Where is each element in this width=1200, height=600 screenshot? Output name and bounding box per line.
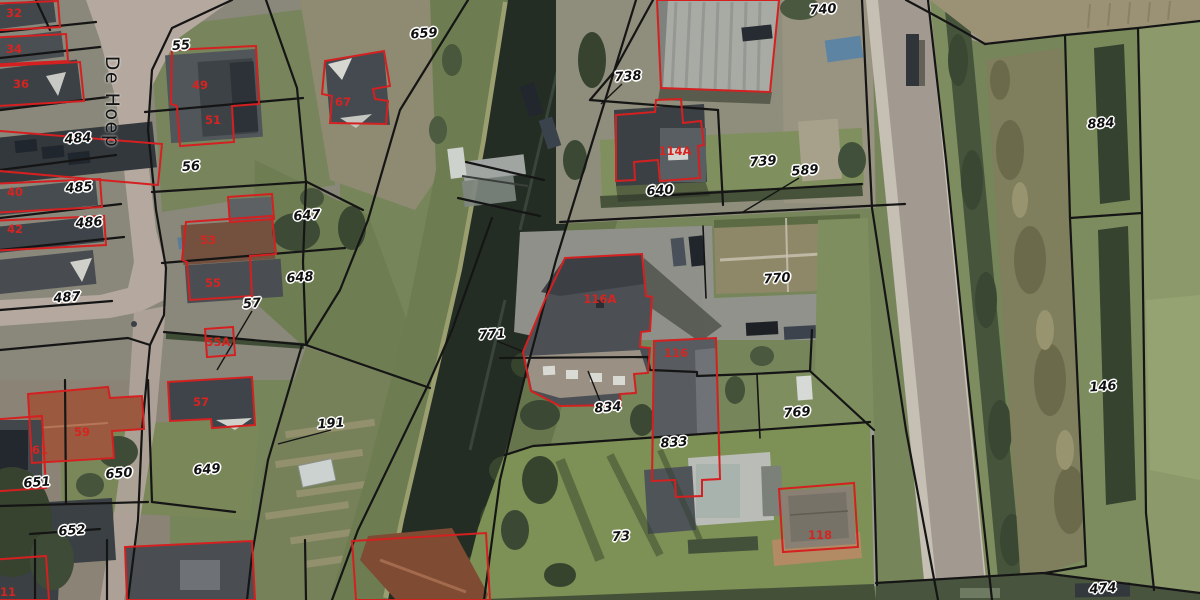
parcel-label: 648: [286, 270, 314, 287]
parcel-label: 651: [23, 475, 51, 492]
parcel-label: 485: [65, 180, 93, 197]
address-label: 67: [335, 95, 351, 109]
parcel-label: 659: [410, 26, 438, 43]
parcel-label: 73: [611, 529, 630, 545]
parcel-label: 770: [763, 271, 791, 288]
parcel-label: 738: [614, 69, 642, 86]
parcel-label: 833: [660, 435, 688, 452]
parcel-label: 146: [1089, 379, 1117, 396]
parcel-label: 650: [105, 466, 133, 483]
address-label: 61: [32, 443, 48, 457]
parcel-label: 884: [1087, 116, 1115, 133]
parcel-label: 486: [75, 215, 103, 232]
address-label: 32: [6, 6, 22, 20]
address-label: 34: [6, 42, 22, 56]
address-label: 114A: [659, 144, 692, 158]
parcel-label: 640: [646, 183, 674, 200]
parcel-label: 771: [478, 327, 506, 344]
aerial-map-viewport[interactable]: De Hoep 55 659 484 56 485 486 647 648 48…: [0, 0, 1200, 600]
address-label: 51: [205, 113, 221, 127]
address-label: 11: [0, 585, 16, 599]
address-label: 118: [808, 528, 832, 542]
address-label: 49: [192, 78, 208, 92]
parcel-label: 647: [293, 208, 321, 225]
address-label: 40: [7, 185, 23, 199]
address-label: 116A: [584, 292, 617, 306]
parcel-label: 740: [809, 2, 837, 19]
parcel-label: 55: [171, 38, 190, 54]
address-label: 55A: [206, 335, 231, 349]
parcel-label: 589: [791, 163, 819, 180]
address-label: 53: [200, 233, 216, 247]
address-label: 36: [13, 77, 29, 91]
address-label: 59: [74, 425, 90, 439]
parcel-label: 487: [53, 290, 81, 307]
parcel-label: 56: [181, 159, 200, 175]
parcel-label: 739: [749, 154, 777, 171]
parcel-label: 57: [242, 296, 261, 312]
address-label: 116: [664, 346, 688, 360]
parcel-label: 652: [58, 523, 86, 540]
parcel-label: 649: [193, 462, 221, 479]
parcel-label: 769: [783, 405, 811, 422]
parcel-label: 474: [1089, 581, 1117, 598]
parcel-label: 834: [594, 400, 622, 417]
parcel-label: 191: [317, 416, 345, 433]
parcel-label: 484: [64, 131, 92, 148]
address-label: 55: [205, 276, 221, 290]
street-name-label: De Hoep: [101, 56, 123, 149]
address-label: 42: [7, 222, 23, 236]
address-label: 57: [193, 395, 209, 409]
